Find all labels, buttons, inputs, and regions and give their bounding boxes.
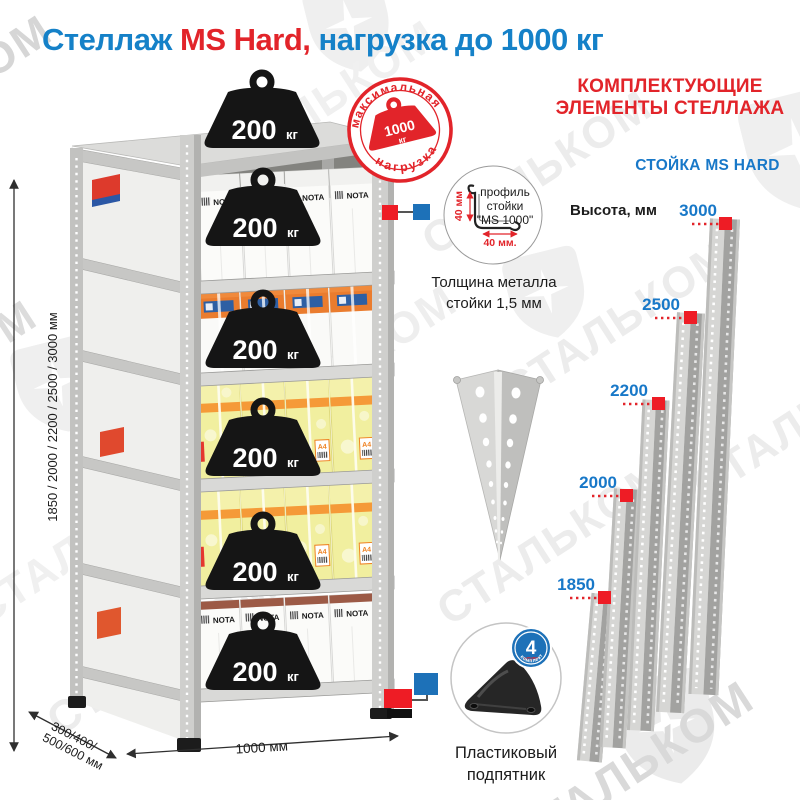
thickness-caption: Толщина металла стойки 1,5 мм [408, 272, 580, 314]
width-dimension-text: 1000 мм [235, 738, 288, 756]
paper-size-label: A4 [318, 549, 327, 556]
svg-text:кг: кг [287, 455, 300, 470]
red-marker-square [684, 311, 697, 324]
svg-text:кг: кг [286, 127, 299, 142]
box-brand-label: NOTA [213, 615, 236, 625]
foot-count-badge: 4 штуки в комплекте [511, 628, 551, 668]
svg-text:200: 200 [231, 115, 276, 145]
components-header-line2: ЭЛЕМЕНТЫ СТЕЛЛАЖА [545, 98, 795, 120]
height-callout-1850: 1850 [557, 575, 611, 604]
components-header-line1: КОМПЛЕКТУЮЩИЕ [545, 76, 795, 98]
title-part-red: MS Hard, [172, 22, 310, 57]
height-callout-2200: 2200 [610, 381, 665, 410]
box-brand-label: NOTA [346, 191, 369, 201]
red-marker-square [652, 397, 665, 410]
title-part-blue: Стеллаж [42, 22, 172, 57]
svg-text:кг: кг [287, 669, 300, 684]
height-dimension-text: 1850 / 2000 / 2200 / 2500 / 3000 мм [45, 312, 60, 521]
blue-marker-square [413, 204, 430, 220]
profile-detail-circle: 40 мм 40 мм. профиль стойки "MS 1000" [444, 166, 542, 264]
height-label: 3000 [679, 201, 717, 220]
profile-callout-connector [382, 204, 430, 220]
blue-marker-square [414, 673, 438, 695]
paper-size-label: A4 [318, 444, 327, 451]
height-callout-2500: 2500 [642, 295, 697, 324]
profile-label-2: стойки [487, 199, 524, 213]
plastic-foot-caption: Пластиковый подпятник [420, 742, 592, 787]
depth-dimension-text: 300/400/ 500/600 мм [40, 718, 111, 773]
red-marker-square [719, 217, 732, 230]
height-label: 2200 [610, 381, 648, 400]
height-callout-2000: 2000 [579, 473, 633, 502]
profile-dim-horizontal: 40 мм. [483, 237, 516, 249]
paper-size-label: A4 [362, 547, 371, 554]
components-header: КОМПЛЕКТУЮЩИЕ ЭЛЕМЕНТЫ СТЕЛЛАЖА [545, 76, 795, 121]
red-marker-square [382, 205, 398, 220]
profile-label-3: "MS 1000" [477, 213, 534, 227]
corner-profile-illustration [454, 370, 544, 560]
svg-text:кг: кг [287, 347, 300, 362]
rack-foot-black [387, 709, 412, 718]
rack-side-face [72, 150, 182, 740]
svg-text:кг: кг [287, 225, 300, 240]
svg-text:200: 200 [232, 335, 277, 365]
height-label: 2500 [642, 295, 680, 314]
height-callout-3000: 3000 [679, 201, 732, 230]
paper-size-label: A4 [362, 442, 371, 449]
height-column-label: Высота, мм [570, 202, 657, 219]
weight-icon: 200 кг [205, 73, 320, 148]
svg-text:200: 200 [232, 557, 277, 587]
upright-subheader: СТОЙКА MS HARD [615, 157, 800, 175]
title-part-blue2: нагрузка до 1000 кг [310, 22, 603, 57]
red-marker-square [598, 591, 611, 604]
box-brand-label: NOTA [302, 611, 325, 621]
profile-dim-vertical: 40 мм [453, 191, 465, 221]
svg-text:200: 200 [232, 213, 277, 243]
height-label: 2000 [579, 473, 617, 492]
red-marker-square [620, 489, 633, 502]
red-marker-square [384, 689, 412, 708]
svg-text:200: 200 [232, 443, 277, 473]
page-title: Стеллаж MS Hard, нагрузка до 1000 кг [42, 22, 603, 58]
rack-illustration: NOTA NOTA NOTA NOTA [68, 73, 394, 752]
svg-text:кг: кг [287, 569, 300, 584]
svg-text:200: 200 [232, 657, 277, 687]
profile-label-1: профиль [480, 185, 530, 199]
plastic-foot-circle: 4 штуки в комплекте [451, 623, 561, 733]
box-brand-label: NOTA [302, 193, 325, 203]
height-label: 1850 [557, 575, 595, 594]
box-brand-label: NOTA [346, 609, 369, 619]
